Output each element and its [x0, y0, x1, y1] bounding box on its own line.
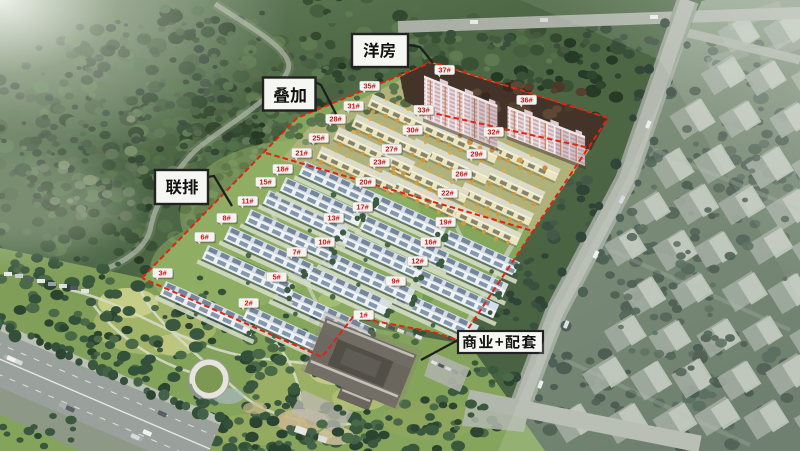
svg-text:33#: 33#: [417, 105, 429, 114]
svg-text:11#: 11#: [242, 196, 254, 205]
svg-text:19#: 19#: [439, 217, 451, 226]
svg-text:29#: 29#: [470, 149, 482, 158]
svg-text:26#: 26#: [455, 169, 467, 178]
svg-text:6#: 6#: [200, 232, 208, 241]
svg-text:36#: 36#: [520, 95, 532, 104]
svg-text:21#: 21#: [295, 148, 307, 157]
svg-text:35#: 35#: [363, 81, 375, 90]
svg-text:5#: 5#: [272, 272, 280, 281]
svg-text:3#: 3#: [158, 268, 166, 277]
svg-text:16#: 16#: [424, 237, 436, 246]
svg-text:32#: 32#: [487, 127, 499, 136]
svg-text:25#: 25#: [312, 133, 324, 142]
svg-text:9#: 9#: [391, 276, 399, 285]
svg-text:1#: 1#: [359, 310, 367, 319]
svg-text:10#: 10#: [318, 237, 330, 246]
svg-text:8#: 8#: [222, 213, 230, 222]
svg-text:2#: 2#: [244, 298, 252, 307]
svg-text:37#: 37#: [438, 65, 450, 74]
svg-text:31#: 31#: [347, 101, 359, 110]
svg-text:22#: 22#: [441, 188, 453, 197]
svg-text:12#: 12#: [411, 256, 423, 265]
svg-text:13#: 13#: [327, 213, 339, 222]
svg-text:30#: 30#: [406, 125, 418, 134]
svg-text:27#: 27#: [385, 144, 397, 153]
svg-text:28#: 28#: [329, 114, 341, 123]
svg-text:17#: 17#: [356, 202, 368, 211]
svg-text:23#: 23#: [373, 157, 385, 166]
svg-text:7#: 7#: [292, 247, 300, 256]
svg-text:20#: 20#: [359, 177, 371, 186]
